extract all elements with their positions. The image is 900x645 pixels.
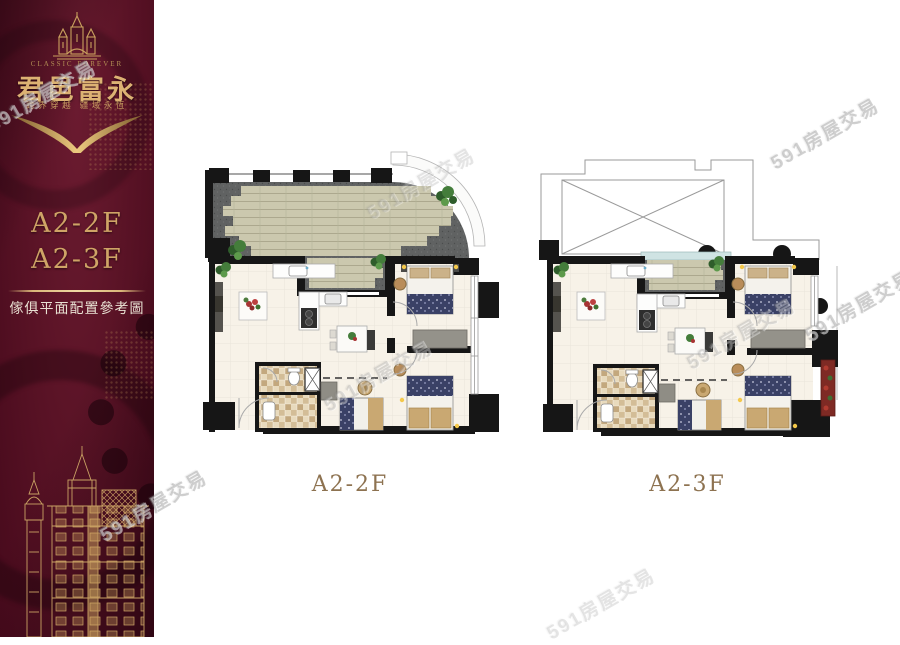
floorplan-a2-3f-drawing <box>535 148 840 448</box>
castle-logo-icon <box>37 12 117 60</box>
brand-tagline: 跨界穿越 疆域永恆 <box>0 99 154 111</box>
brand-logo-caption: CLASSIC FOREVER <box>0 60 154 68</box>
building-illustration <box>2 432 152 637</box>
brand-sidebar: CLASSIC FOREVER 君邑富永 跨界穿越 疆域永恆 A2-2F A2-… <box>0 0 154 637</box>
sidebar-unit-label-a2-3f: A2-3F <box>0 244 154 275</box>
closet <box>321 382 337 400</box>
closet <box>659 384 675 402</box>
floorplan-a2-2f-drawing <box>195 146 505 456</box>
gold-divider <box>8 290 146 292</box>
plan-label-a2-3f: A2-3F <box>535 472 840 497</box>
dot-pattern <box>104 330 154 400</box>
furniture-layout-caption: 傢俱平面配置參考圖 <box>0 298 154 318</box>
plan-label-a2-2f: A2-2F <box>195 472 505 497</box>
terrace-deck <box>223 186 453 256</box>
floorplan-a2-3f <box>535 148 840 453</box>
floorplan-a2-2f <box>195 146 505 461</box>
windows <box>471 276 478 394</box>
gold-chevron-ornament <box>7 113 147 153</box>
sidebar-unit-label-a2-2f: A2-2F <box>0 208 154 239</box>
flower-planter <box>821 360 835 416</box>
windows <box>811 276 818 326</box>
watermark: 591房屋交易 <box>541 561 660 645</box>
